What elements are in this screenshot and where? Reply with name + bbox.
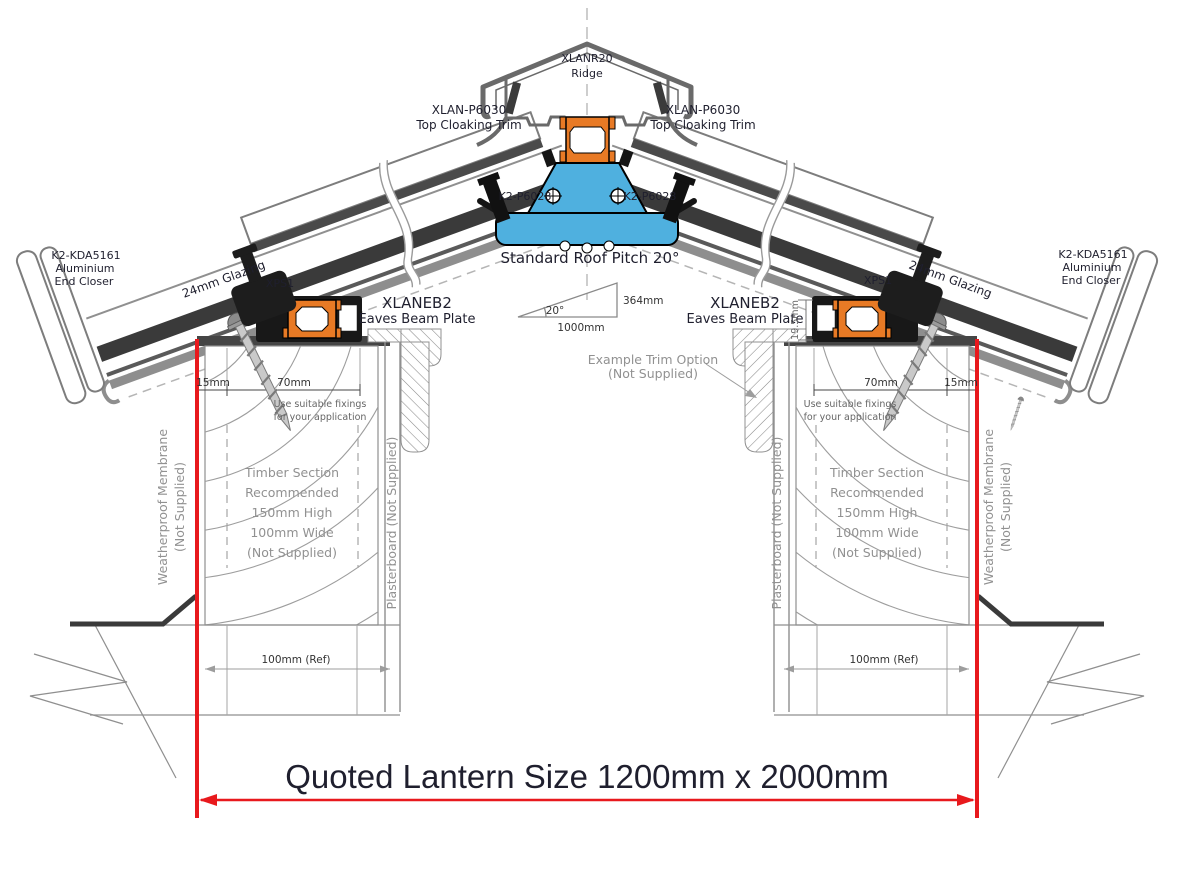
timber-note-l3-left: 150mm High <box>252 505 333 520</box>
fixings-note-line1-left: Use suitable fixings <box>274 399 367 410</box>
plasterboard-label-left: Plasterboard (Not Supplied) <box>384 437 399 610</box>
beam-height-label: 19.5mm <box>790 300 801 340</box>
membrane-label-l2-left: (Not Supplied) <box>172 462 187 552</box>
dim-70mm-left: 70mm <box>277 377 311 389</box>
ridge-bolt-label-right: K2-P6028 <box>624 190 677 203</box>
end-closer-line3-left: End Closer <box>55 275 114 288</box>
roof-lantern-section-drawing: XLANR20 Ridge XLAN-P6030 Top Cloaking Tr… <box>0 0 1184 872</box>
dim-15mm-left: 15mm <box>196 377 230 389</box>
dim-15mm-right: 15mm <box>944 377 978 389</box>
ridge-code-label: XLANR20 <box>561 52 612 65</box>
fixings-note-line1-right: Use suitable fixings <box>804 399 897 410</box>
end-closer-code-right: K2-KDA5161 <box>1058 248 1127 261</box>
pitch-base: 1000mm <box>557 322 604 334</box>
timber-note-l1-left: Timber Section <box>244 465 339 480</box>
cloaking-trim-code-right: XLAN-P6030 <box>666 103 740 117</box>
xps-label-left: XPS1 <box>266 277 294 290</box>
eaves-beam-code-right: XLANEB2 <box>710 294 780 312</box>
plasterboard-label-right: Plasterboard (Not Supplied) <box>769 437 784 610</box>
eaves-beam-code-left: XLANEB2 <box>382 294 452 312</box>
end-closer-line3-right: End Closer <box>1062 274 1121 287</box>
eaves-beam-name-left: Eaves Beam Plate <box>359 312 476 327</box>
xps-label-right: XPS1 <box>864 274 892 287</box>
fixings-note-line2-right: for your application <box>804 412 897 423</box>
dim-70mm-right: 70mm <box>864 377 898 389</box>
trim-option-line1: Example Trim Option <box>588 352 718 367</box>
pitch-triangle <box>518 283 617 317</box>
pitch-rise: 364mm <box>623 295 664 307</box>
ref-100mm-left: 100mm (Ref) <box>261 654 330 666</box>
ridge-glazing-bar <box>560 117 615 163</box>
membrane-label-l1-right: Weatherproof Membrane <box>981 429 996 585</box>
end-closer-line2-right: Aluminium <box>1062 261 1121 274</box>
timber-note-l2-left: Recommended <box>245 485 339 500</box>
cloaking-trim-name-left: Top Cloaking Trim <box>415 118 521 132</box>
timber-note-l2-right: Recommended <box>830 485 924 500</box>
timber-note-l1-right: Timber Section <box>829 465 924 480</box>
timber-note-l4-left: 100mm Wide <box>250 525 334 540</box>
cloaking-trim-name-right: Top Cloaking Trim <box>649 118 755 132</box>
timber-note-l4-right: 100mm Wide <box>835 525 919 540</box>
ridge-bolt-label-left: K2-P6028 <box>499 190 552 203</box>
pitch-angle: 20° <box>546 305 565 317</box>
fixings-note-line2-left: for your application <box>274 412 367 423</box>
timber-note-l5-left: (Not Supplied) <box>247 545 337 560</box>
membrane-label-l2-right: (Not Supplied) <box>998 462 1013 552</box>
ridge-name-label: Ridge <box>571 67 603 80</box>
trim-option-line2: (Not Supplied) <box>608 366 698 381</box>
end-closer-line2-left: Aluminium <box>55 262 114 275</box>
cloaking-trim-code-left: XLAN-P6030 <box>432 103 506 117</box>
screw-icon <box>1008 396 1024 431</box>
membrane-label-l1-left: Weatherproof Membrane <box>155 429 170 585</box>
timber-note-l3-right: 150mm High <box>837 505 918 520</box>
quoted-size-label: Quoted Lantern Size 1200mm x 2000mm <box>285 758 889 795</box>
pitch-note: Standard Roof Pitch 20° <box>500 249 679 267</box>
end-closer-code-left: K2-KDA5161 <box>51 249 120 262</box>
eaves-beam-name-right: Eaves Beam Plate <box>687 312 804 327</box>
timber-note-l5-right: (Not Supplied) <box>832 545 922 560</box>
ref-100mm-right: 100mm (Ref) <box>849 654 918 666</box>
